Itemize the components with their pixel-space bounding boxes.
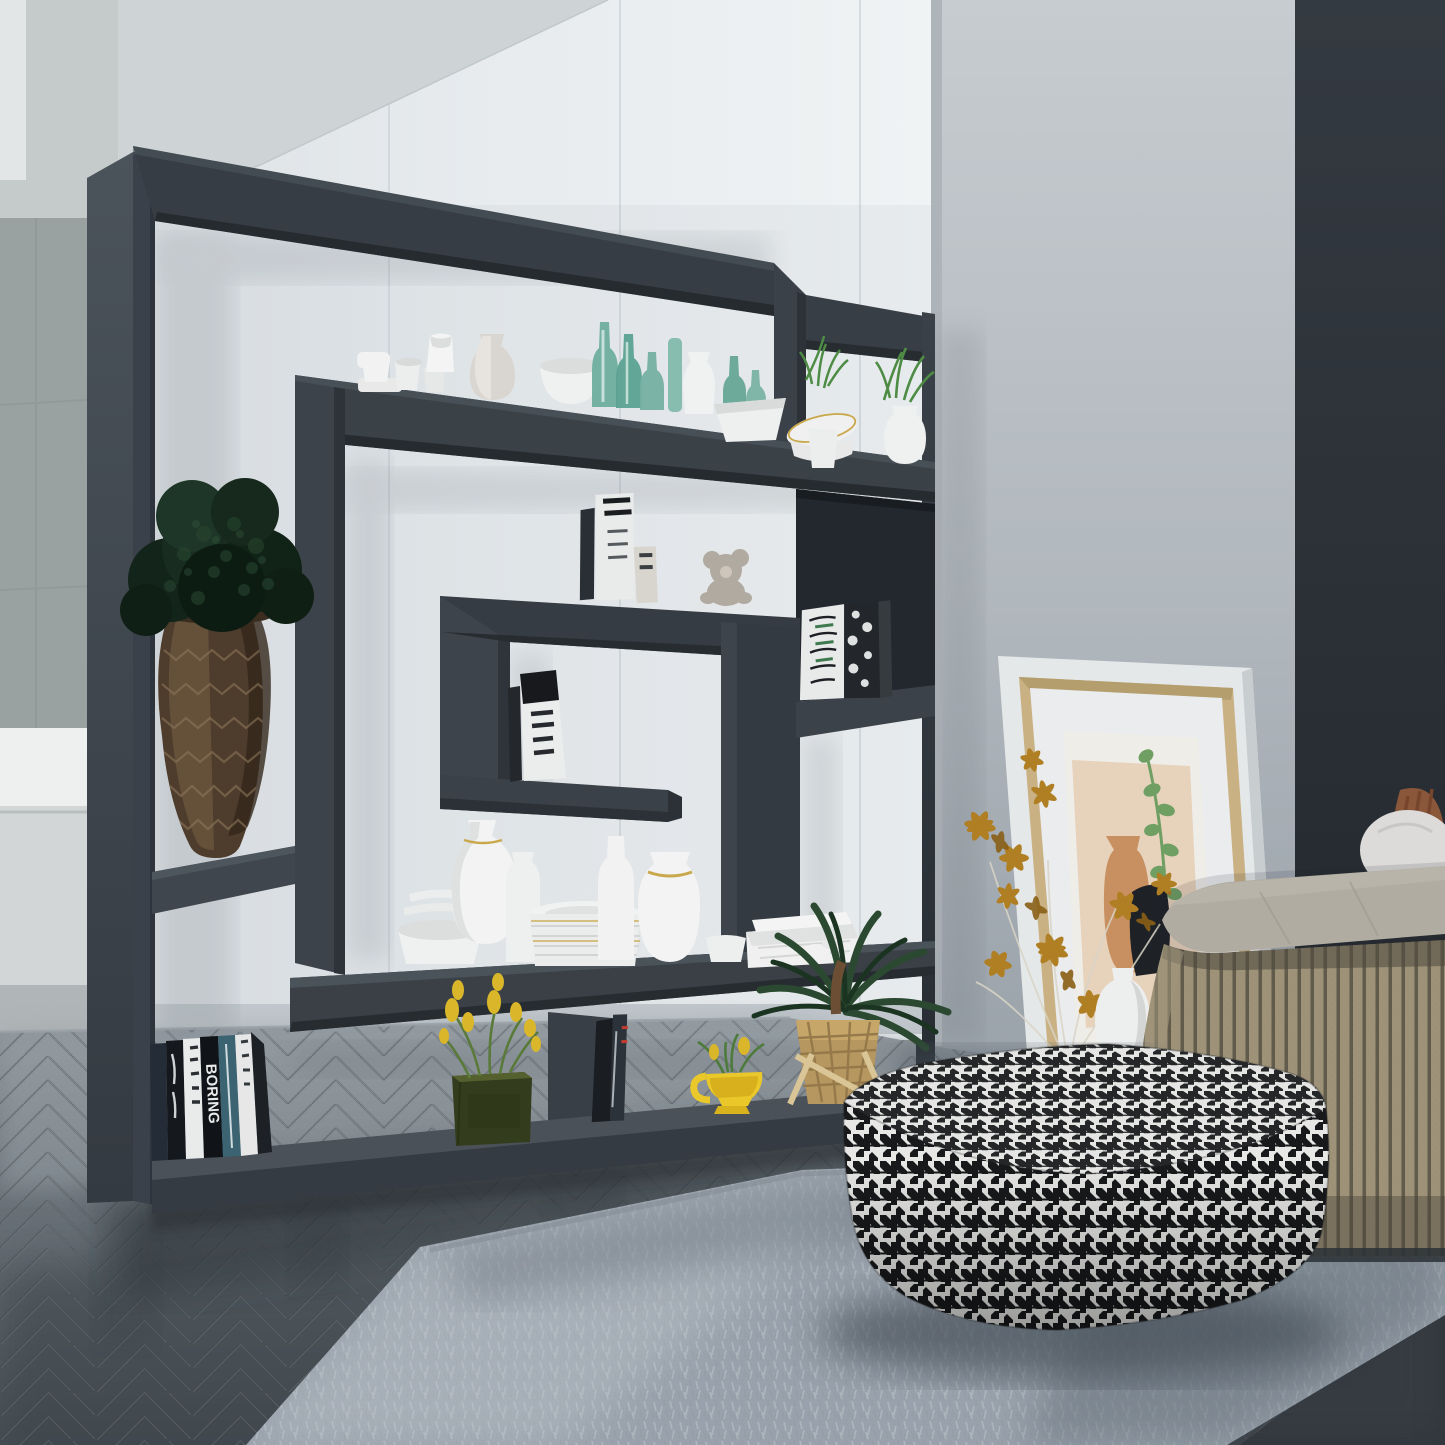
- svg-text:BORING: BORING: [202, 1063, 222, 1124]
